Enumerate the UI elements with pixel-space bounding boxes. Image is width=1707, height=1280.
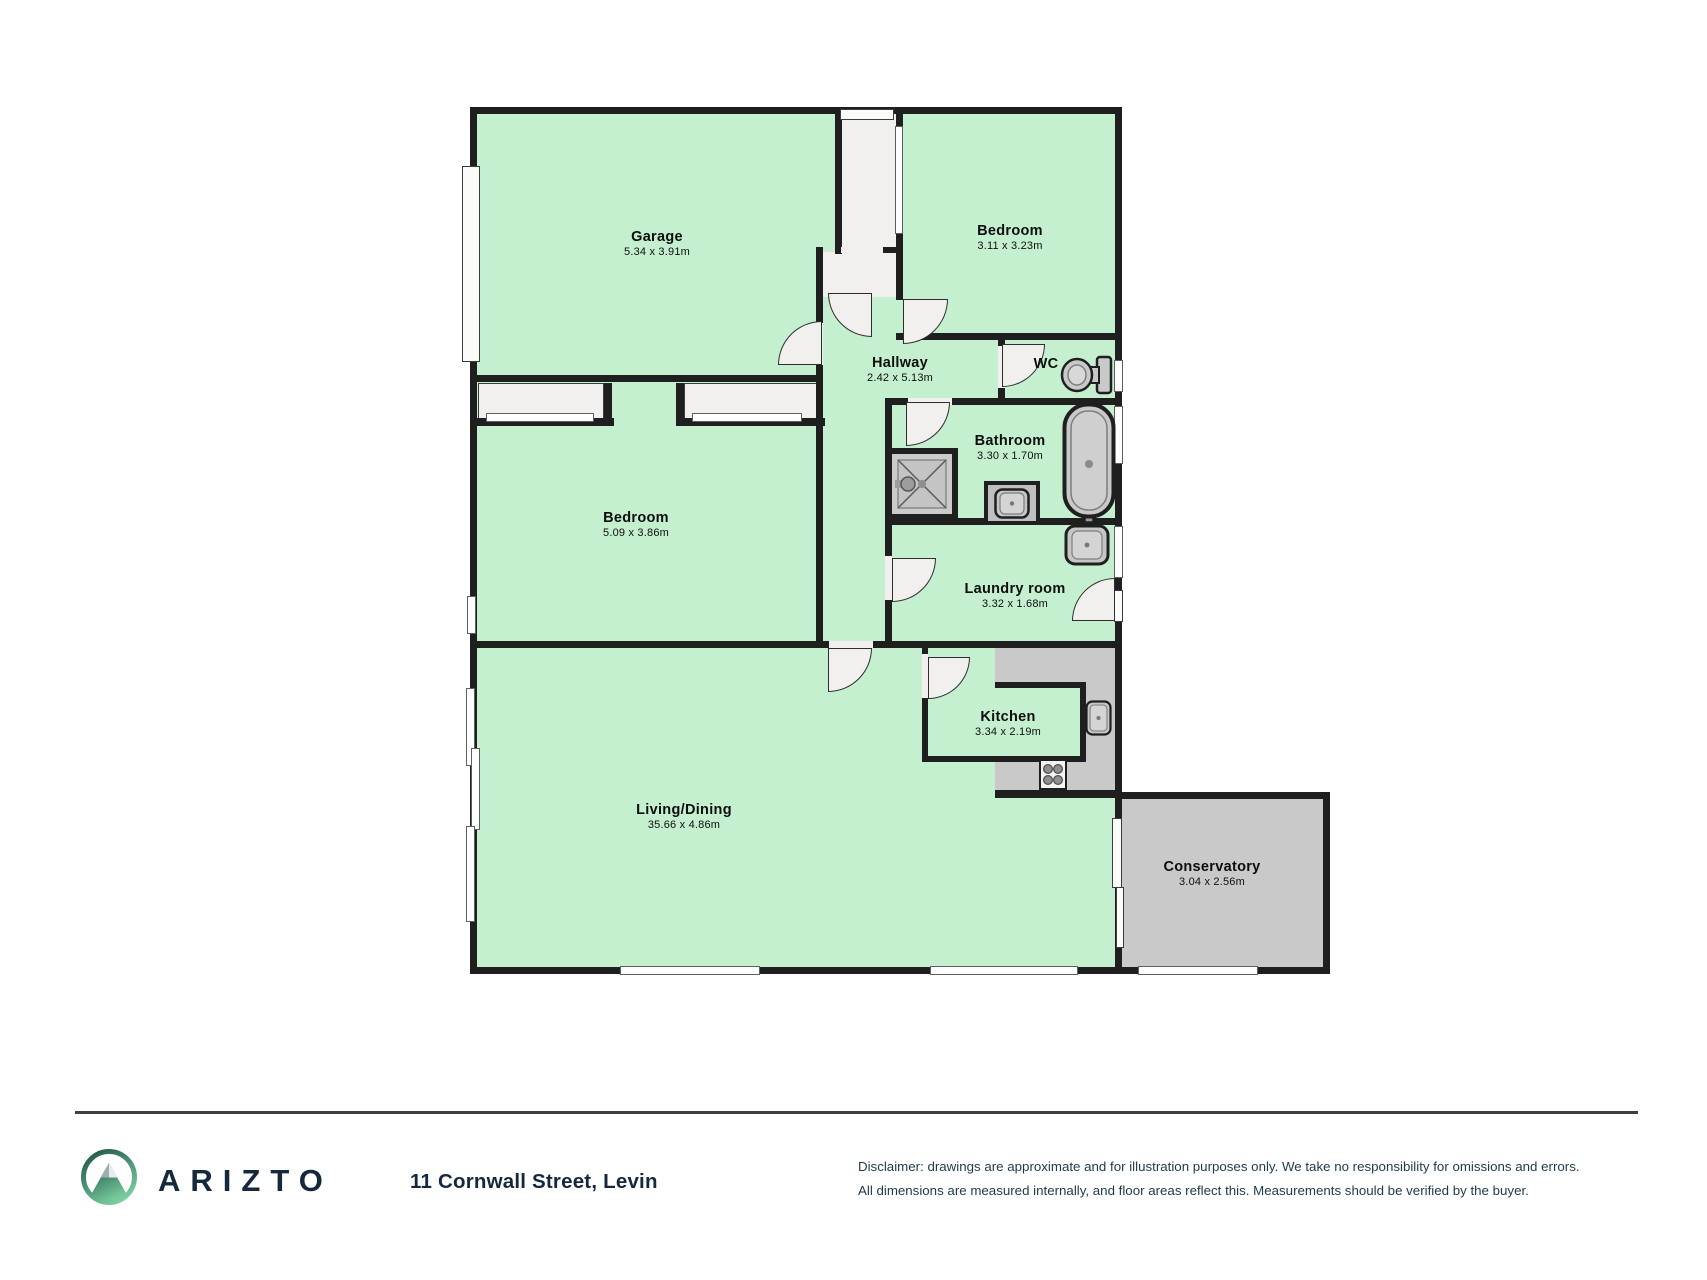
kitchen-sink-icon	[1085, 700, 1112, 736]
window	[471, 748, 480, 830]
shower-icon	[886, 448, 958, 520]
wall-top	[470, 107, 1122, 114]
wall-garage-bottom	[470, 375, 823, 382]
window	[620, 966, 760, 975]
wall	[995, 790, 1122, 798]
wall-alcove-stub	[604, 383, 612, 426]
entry-corridor-floor	[841, 112, 896, 248]
floor-plan-page: Garage 5.34 x 3.91m Bedroom 3.11 x 3.23m…	[0, 0, 1707, 1280]
wall-corridor-left	[835, 107, 842, 254]
window	[895, 126, 903, 234]
window	[467, 596, 476, 634]
room-label-laundry: Laundry room 3.32 x 1.68m	[964, 581, 1065, 610]
door-opening	[841, 247, 883, 253]
laundry-exterior-door-leaf	[1114, 590, 1123, 622]
door-opening	[829, 641, 873, 648]
wall	[995, 682, 1086, 688]
window	[1138, 966, 1258, 975]
window	[930, 966, 1078, 975]
stove-icon	[1039, 759, 1067, 790]
window-sill	[692, 413, 802, 422]
front-door-leaf	[840, 109, 894, 120]
room-label-hallway: Hallway 2.42 x 5.13m	[867, 355, 933, 384]
room-label-bathroom: Bathroom 3.30 x 1.70m	[975, 433, 1046, 462]
bathtub-icon	[1062, 402, 1116, 524]
disclaimer-line2: All dimensions are measured internally, …	[858, 1179, 1648, 1203]
property-address: 11 Cornwall Street, Levin	[410, 1170, 658, 1194]
laundry-tub-icon	[1064, 524, 1110, 566]
sink-icon	[994, 488, 1030, 519]
window	[1114, 360, 1123, 392]
wall-conservatory-right	[1323, 792, 1330, 974]
disclaimer-line1: Disclaimer: drawings are approximate and…	[858, 1155, 1648, 1179]
room-label-bedroom-top: Bedroom 3.11 x 3.23m	[977, 223, 1043, 252]
kitchen-counter-top	[995, 648, 1122, 682]
conservatory-door	[1116, 887, 1124, 948]
room-label-wc: WC	[1034, 356, 1059, 372]
room-label-conservatory: Conservatory 3.04 x 2.56m	[1163, 859, 1260, 888]
mountain-logo-icon	[80, 1148, 138, 1206]
vestibule-floor	[823, 252, 896, 297]
disclaimer-text: Disclaimer: drawings are approximate and…	[858, 1155, 1648, 1203]
conservatory-door	[1112, 818, 1122, 888]
wall-conservatory-top	[1115, 792, 1330, 799]
room-label-kitchen: Kitchen 3.34 x 2.19m	[975, 709, 1041, 738]
toilet-icon	[1060, 354, 1114, 396]
room-label-living-dining: Living/Dining 35.66 x 4.86m	[636, 802, 732, 831]
garage-door	[462, 166, 480, 362]
window-sill	[486, 413, 594, 422]
wall-alcove-stub	[676, 383, 684, 426]
room-label-garage: Garage 5.34 x 3.91m	[624, 229, 690, 258]
footer-divider	[75, 1111, 1638, 1114]
window	[1114, 526, 1123, 578]
room-label-bedroom-mid: Bedroom 5.09 x 3.86m	[603, 510, 669, 539]
window	[466, 826, 475, 922]
brand-logo-text: ARIZTO	[158, 1163, 333, 1199]
wall-mid-horizontal	[470, 641, 1122, 648]
wall-hallway-left	[816, 247, 823, 648]
door-opening	[885, 556, 892, 600]
